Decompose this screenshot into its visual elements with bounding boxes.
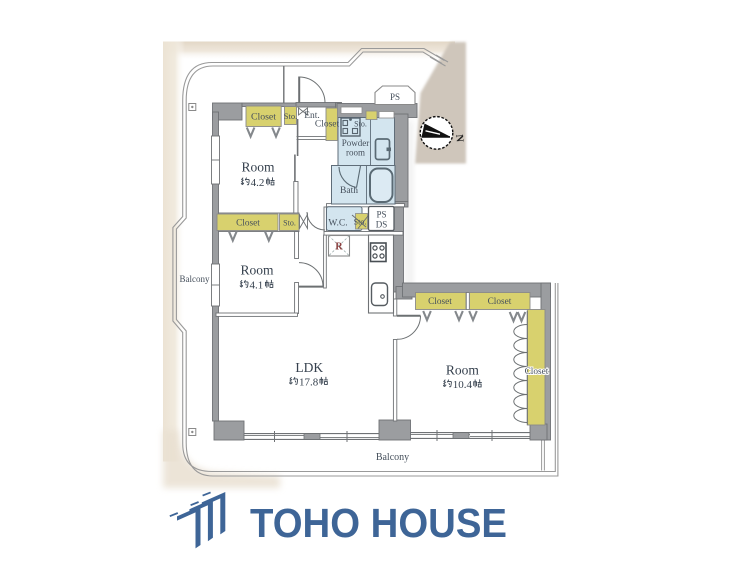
svg-text:R: R <box>335 242 343 253</box>
svg-text:4.1: 4.1 <box>250 280 264 292</box>
svg-text:17.8: 17.8 <box>299 377 319 389</box>
svg-text:Sto.: Sto. <box>354 218 367 227</box>
svg-text:Room: Room <box>240 263 274 278</box>
svg-text:Closet: Closet <box>315 120 340 130</box>
svg-text:4.2: 4.2 <box>251 177 265 189</box>
svg-text:LDK: LDK <box>295 360 323 375</box>
svg-text:W.C.: W.C. <box>328 219 347 229</box>
svg-text:10.4: 10.4 <box>453 379 473 391</box>
svg-text:Bath: Bath <box>340 186 358 196</box>
svg-text:Balcony: Balcony <box>376 452 409 463</box>
svg-text:N: N <box>453 134 465 143</box>
svg-text:PS: PS <box>376 210 386 220</box>
svg-text:Closet: Closet <box>525 367 549 377</box>
svg-text:TOHO HOUSE: TOHO HOUSE <box>250 500 507 546</box>
svg-text:Closet: Closet <box>251 112 276 123</box>
svg-text:Powder: Powder <box>342 138 370 148</box>
svg-text:PS: PS <box>390 92 400 102</box>
svg-text:DS: DS <box>376 220 388 230</box>
svg-text:Closet: Closet <box>236 219 260 229</box>
svg-text:Room: Room <box>241 160 275 175</box>
svg-text:Sto.: Sto. <box>284 111 297 121</box>
svg-text:room: room <box>346 148 365 158</box>
svg-text:Room: Room <box>446 363 480 378</box>
svg-text:Sto.: Sto. <box>354 120 367 129</box>
svg-text:Balcony: Balcony <box>180 274 210 284</box>
svg-text:Closet: Closet <box>488 297 512 307</box>
svg-text:Closet: Closet <box>428 297 452 307</box>
svg-text:Sto.: Sto. <box>283 219 296 228</box>
